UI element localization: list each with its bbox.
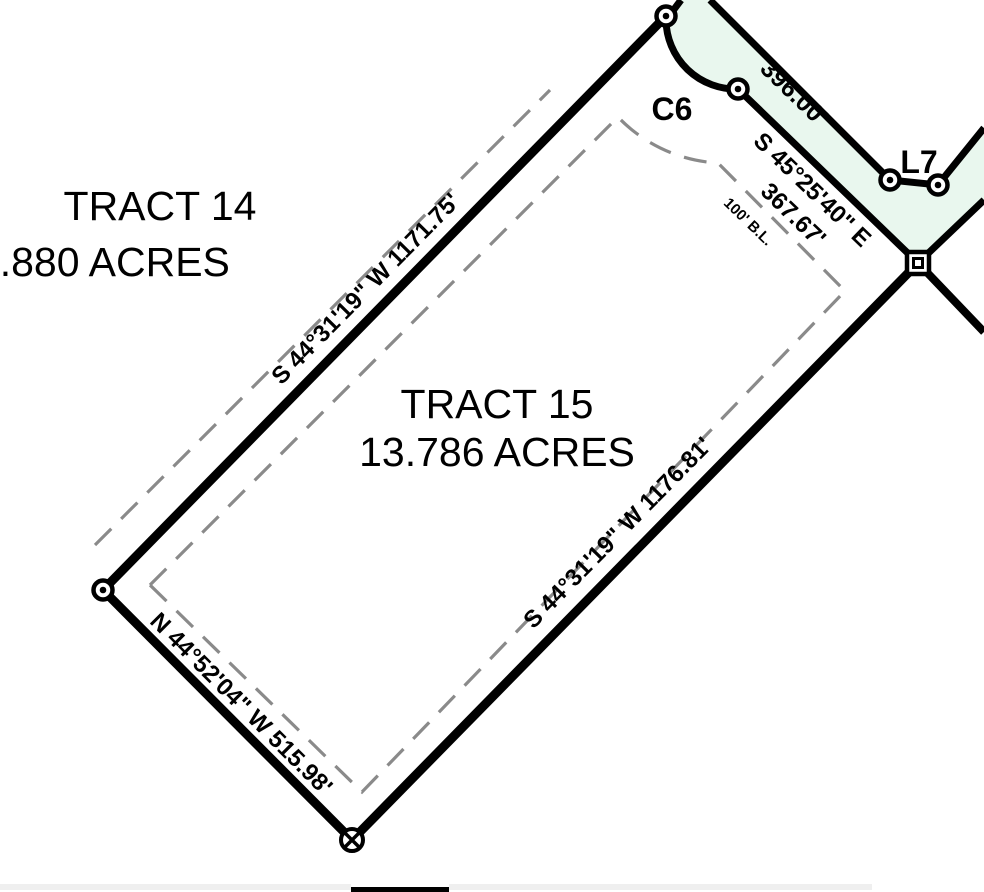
plat-canvas[interactable]: TRACT 14 14.880 ACRES S 44°31'19" W 1171…: [0, 0, 984, 892]
monument-square-icon-east-corner: [907, 252, 929, 274]
monument-pin-icon-curve-end: [729, 80, 748, 99]
plat-viewer: TRACT 14 14.880 ACRES S 44°31'19" W 1171…: [0, 0, 984, 892]
scrollbar-track-right[interactable]: [449, 884, 872, 890]
scrollbar-thumb[interactable]: [351, 887, 449, 892]
curve-id-label: C6: [652, 91, 693, 127]
monument-pin-icon-l7-east: [929, 176, 948, 195]
monument-pin-icon-l7-west: [881, 171, 900, 190]
tract14-acreage: 14.880 ACRES: [0, 239, 230, 285]
monument-pin-icon-north: [657, 7, 676, 26]
tract15-title: TRACT 15: [401, 381, 594, 427]
monument-pin-icon-west-corner: [94, 581, 113, 600]
tract14-title: TRACT 14: [64, 183, 257, 229]
segment-id-label: L7: [900, 144, 937, 180]
monument-crossed-pin-icon-south-corner: [341, 829, 363, 851]
scrollbar-track-left[interactable]: [0, 884, 351, 890]
tract15-acreage: 13.786 ACRES: [359, 429, 635, 475]
